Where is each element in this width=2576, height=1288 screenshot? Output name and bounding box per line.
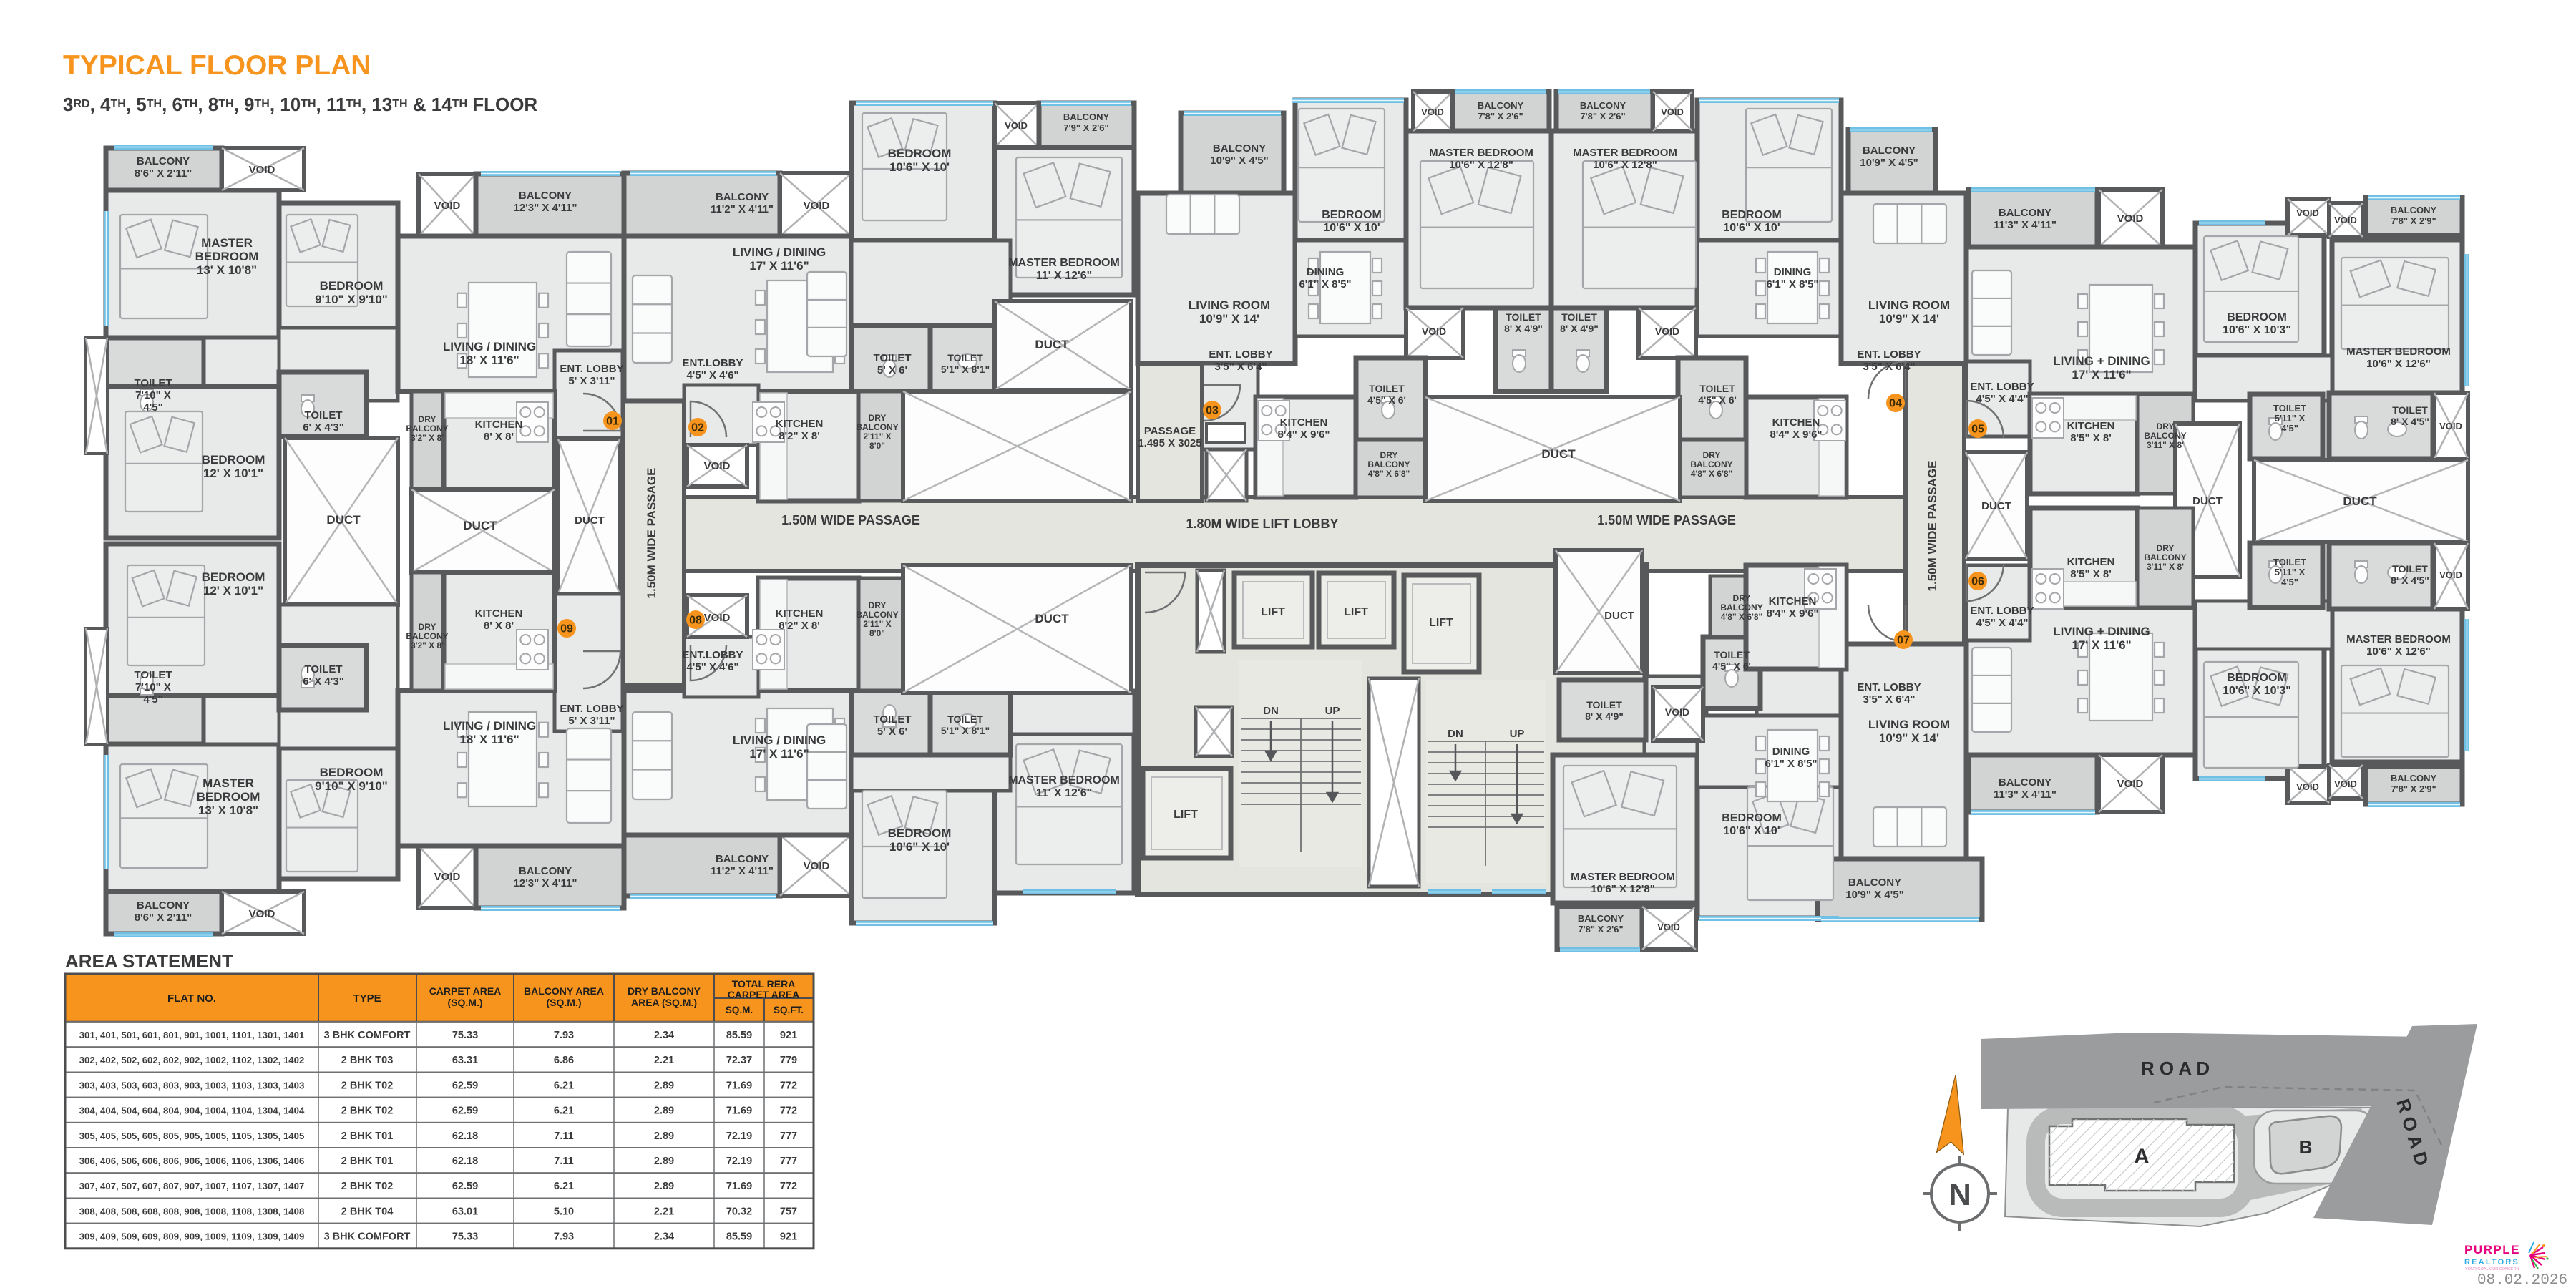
svg-text:2 BHK T01: 2 BHK T01 [341,1156,394,1167]
svg-text:ENT. LOBBY5' X 3'11": ENT. LOBBY5' X 3'11" [560,363,623,387]
svg-text:DN: DN [1448,728,1463,740]
svg-text:BEDROOM10'6" X 10': BEDROOM10'6" X 10' [888,147,952,174]
svg-text:772: 772 [780,1106,797,1117]
svg-text:TOILET4'5" X 6': TOILET4'5" X 6' [1712,649,1751,672]
svg-text:03: 03 [1206,405,1219,417]
svg-text:VOID: VOID [2296,781,2319,792]
svg-text:DINING6'1" X 8'5": DINING6'1" X 8'5" [1299,266,1351,291]
svg-text:72.19: 72.19 [726,1156,752,1167]
svg-text:DUCT: DUCT [1541,447,1576,461]
svg-text:304, 404, 504, 604, 804, 904,: 304, 404, 504, 604, 804, 904, 1004, 1104… [79,1106,305,1116]
svg-text:TOILET5' X 6': TOILET5' X 6' [873,713,911,738]
svg-text:TYPE: TYPE [353,992,381,1005]
svg-text:UP: UP [1510,728,1525,740]
svg-text:2.89: 2.89 [654,1156,674,1167]
svg-text:BEDROOM10'6" X 10'3": BEDROOM10'6" X 10'3" [2223,311,2291,336]
svg-text:BEDROOM10'6" X 10': BEDROOM10'6" X 10' [1722,812,1782,837]
svg-text:KITCHEN8'2" X 8': KITCHEN8'2" X 8' [776,418,824,442]
svg-text:BEDROOM12' X 10'1": BEDROOM12' X 10'1" [202,453,265,480]
svg-text:VOID: VOID [804,200,830,212]
svg-text:DUCT: DUCT [326,513,361,527]
svg-text:305, 405, 505, 605, 805, 905,: 305, 405, 505, 605, 805, 905, 1005, 1105… [79,1131,305,1141]
svg-text:VOID: VOID [2334,779,2357,789]
svg-text:2 BHK T02: 2 BHK T02 [341,1106,394,1117]
svg-text:ENT. LOBBY5' X 3'11": ENT. LOBBY5' X 3'11" [560,703,623,727]
svg-text:TYPICAL FLOOR PLAN: TYPICAL FLOOR PLAN [63,50,371,81]
svg-text:5.10: 5.10 [554,1206,574,1217]
svg-text:71.69: 71.69 [726,1106,752,1117]
svg-text:62.18: 62.18 [452,1156,478,1167]
svg-text:UP: UP [1325,705,1340,717]
svg-text:MASTERBEDROOM13' X 10'8": MASTERBEDROOM13' X 10'8" [195,236,259,277]
svg-text:BALCONY8'6" X 2'11": BALCONY8'6" X 2'11" [135,155,192,180]
svg-text:BALCONY12'3" X 4'11": BALCONY12'3" X 4'11" [514,190,577,214]
svg-text:307, 407, 507, 607, 807, 907,: 307, 407, 507, 607, 807, 907, 1007, 1107… [79,1181,305,1191]
svg-text:VOID: VOID [704,460,731,472]
svg-text:62.59: 62.59 [452,1106,478,1117]
svg-text:VOID: VOID [434,871,461,883]
svg-text:DRY BALCONYAREA (SQ.M.): DRY BALCONYAREA (SQ.M.) [628,985,701,1008]
svg-text:TOILET4'5" X 6': TOILET4'5" X 6' [1367,383,1406,406]
svg-text:BEDROOM10'6" X 10': BEDROOM10'6" X 10' [1722,209,1782,234]
svg-text:VOID: VOID [249,908,275,920]
svg-text:ENT.LOBBY4'5" X 4'6": ENT.LOBBY4'5" X 4'6" [682,649,743,673]
svg-text:2.89: 2.89 [654,1131,674,1142]
svg-text:62.18: 62.18 [452,1131,478,1142]
svg-text:VOID: VOID [2439,570,2462,580]
svg-text:309, 409, 509, 609, 809, 909,: 309, 409, 509, 609, 809, 909, 1009, 1109… [79,1231,305,1242]
svg-text:71.69: 71.69 [726,1080,752,1091]
svg-text:2.89: 2.89 [654,1106,674,1117]
svg-text:DN: DN [1263,705,1279,717]
svg-text:85.59: 85.59 [726,1231,752,1243]
svg-text:MASTERBEDROOM13' X 10'8": MASTERBEDROOM13' X 10'8" [197,776,260,817]
svg-text:TOILET8' X 4'5": TOILET8' X 4'5" [2391,404,2429,427]
svg-text:VOID: VOID [2117,778,2144,790]
svg-text:1.50M WIDE PASSAGE: 1.50M WIDE PASSAGE [1926,461,1939,592]
svg-text:2 BHK T03: 2 BHK T03 [341,1055,394,1066]
svg-text:TOILET6' X 4'3": TOILET6' X 4'3" [303,409,344,434]
svg-text:VOID: VOID [1661,107,1684,117]
svg-text:AREA STATEMENT: AREA STATEMENT [65,950,233,972]
svg-text:62.59: 62.59 [452,1080,478,1091]
svg-text:FLAT NO.: FLAT NO. [167,992,216,1005]
svg-text:VOID: VOID [2334,215,2357,225]
svg-text:LIVING ROOM10'9" X 14': LIVING ROOM10'9" X 14' [1189,298,1270,326]
svg-text:DUCT: DUCT [463,519,497,532]
svg-text:BEDROOM10'6" X 10': BEDROOM10'6" X 10' [1322,209,1382,234]
svg-text:301, 401, 501, 601, 801, 901,: 301, 401, 501, 601, 801, 901, 1001, 1101… [79,1030,305,1040]
svg-text:921: 921 [780,1030,797,1041]
svg-text:VOID: VOID [1422,326,1446,337]
svg-text:KITCHEN8'4" X 9'6": KITCHEN8'4" X 9'6" [1770,416,1822,441]
svg-text:2.89: 2.89 [654,1080,674,1091]
svg-text:BEDROOM12' X 10'1": BEDROOM12' X 10'1" [202,570,265,597]
svg-text:2.21: 2.21 [654,1206,674,1217]
svg-text:VOID: VOID [704,612,731,624]
svg-text:BEDROOM9'10" X 9'10": BEDROOM9'10" X 9'10" [315,279,388,306]
svg-text:PURPLE: PURPLE [2464,1243,2520,1257]
svg-text:DUCT: DUCT [1981,500,2011,512]
svg-text:1.50M WIDE PASSAGE: 1.50M WIDE PASSAGE [645,468,658,599]
svg-text:302, 402, 502, 602, 802, 902,: 302, 402, 502, 602, 802, 902, 1002, 1102… [79,1055,305,1065]
svg-text:6.21: 6.21 [554,1106,574,1117]
svg-text:2.34: 2.34 [654,1030,674,1041]
svg-text:2.34: 2.34 [654,1231,674,1243]
svg-text:75.33: 75.33 [452,1030,478,1041]
svg-text:63.31: 63.31 [452,1055,478,1066]
svg-text:KITCHEN8'5" X 8': KITCHEN8'5" X 8' [2067,556,2115,580]
svg-text:BALCONY11'3" X 4'11": BALCONY11'3" X 4'11" [1994,207,2057,231]
svg-text:02: 02 [691,422,704,434]
svg-text:TOILET5' X 6': TOILET5' X 6' [873,352,911,376]
svg-text:KITCHEN8'4" X 9'6": KITCHEN8'4" X 9'6" [1766,595,1818,620]
svg-text:VOID: VOID [249,164,275,176]
svg-text:BALCONY8'6" X 2'11": BALCONY8'6" X 2'11" [135,899,192,924]
svg-text:2 BHK T01: 2 BHK T01 [341,1131,394,1142]
svg-text:SQ.FT.: SQ.FT. [774,1005,804,1015]
svg-text:BALCONY7'8" X 2'9": BALCONY7'8" X 2'9" [2391,773,2437,794]
svg-text:TOILET5'1" X 8'1": TOILET5'1" X 8'1" [941,713,990,736]
svg-text:TOILET8' X 4'9": TOILET8' X 4'9" [1585,699,1624,722]
svg-text:7.93: 7.93 [554,1030,574,1041]
svg-text:TOILET5'1" X 8'1": TOILET5'1" X 8'1" [941,352,990,375]
svg-text:772: 772 [780,1080,797,1091]
svg-text:VOID: VOID [1657,922,1680,932]
svg-text:DUCT: DUCT [1035,338,1069,351]
svg-text:BALCONY7'8" X 2'6": BALCONY7'8" X 2'6" [1578,913,1624,935]
svg-text:VOID: VOID [1005,120,1028,131]
svg-text:VOID: VOID [434,200,461,212]
svg-text:08.02.2026: 08.02.2026 [2477,1272,2567,1288]
svg-text:06: 06 [1971,576,1984,588]
svg-text:6.21: 6.21 [554,1080,574,1091]
svg-text:LIFT: LIFT [1429,617,1453,629]
svg-text:75.33: 75.33 [452,1231,478,1243]
svg-text:N: N [1948,1177,1971,1212]
svg-text:777: 777 [780,1131,797,1142]
svg-text:6.21: 6.21 [554,1181,574,1192]
svg-text:DUCT: DUCT [575,514,605,527]
svg-text:7.93: 7.93 [554,1231,574,1243]
svg-text:TOILET8' X 4'9": TOILET8' X 4'9" [1504,311,1543,334]
svg-text:DUCT: DUCT [1604,610,1634,622]
svg-text:TOILET8' X 4'5": TOILET8' X 4'5" [2391,563,2429,586]
svg-text:PASSAGE1.495 X 3025: PASSAGE1.495 X 3025 [1138,425,1201,449]
svg-text:772: 772 [780,1181,797,1192]
svg-text:ENT. LOBBY3'5" X 6'4": ENT. LOBBY3'5" X 6'4" [1857,681,1921,706]
svg-text:LIFT: LIFT [1261,606,1285,618]
svg-text:63.01: 63.01 [452,1206,478,1217]
svg-text:3 BHK COMFORT: 3 BHK COMFORT [324,1030,411,1041]
svg-text:BEDROOM10'6" X 10'3": BEDROOM10'6" X 10'3" [2223,672,2291,697]
svg-text:777: 777 [780,1156,797,1167]
svg-text:1.50M WIDE PASSAGE: 1.50M WIDE PASSAGE [781,513,920,527]
svg-text:DUCT: DUCT [2192,495,2223,507]
svg-text:VOID: VOID [1655,326,1679,337]
svg-text:2.89: 2.89 [654,1181,674,1192]
svg-text:05: 05 [1971,424,1984,436]
svg-text:01: 01 [606,416,619,428]
svg-text:71.69: 71.69 [726,1181,752,1192]
svg-text:921: 921 [780,1231,797,1243]
svg-text:BALCONY7'9" X 2'6": BALCONY7'9" X 2'6" [1063,112,1110,133]
svg-text:2 BHK T02: 2 BHK T02 [341,1080,394,1091]
svg-text:1.80M WIDE LIFT LOBBY: 1.80M WIDE LIFT LOBBY [1186,517,1338,531]
svg-text:ENT.LOBBY4'5" X 4'6": ENT.LOBBY4'5" X 4'6" [682,357,743,381]
svg-text:72.37: 72.37 [726,1055,752,1066]
svg-text:KITCHEN8'2" X 8': KITCHEN8'2" X 8' [776,608,824,632]
svg-text:BALCONY11'3" X 4'11": BALCONY11'3" X 4'11" [1994,776,2057,801]
svg-text:DUCT: DUCT [2343,494,2377,508]
svg-text:07: 07 [1897,635,1910,647]
svg-text:BALCONY10'9" X 4'5": BALCONY10'9" X 4'5" [1210,142,1268,167]
svg-text:DINING6'1" X 8'5": DINING6'1" X 8'5" [1765,746,1817,770]
svg-text:85.59: 85.59 [726,1030,752,1041]
svg-text:62.59: 62.59 [452,1181,478,1192]
svg-text:70.32: 70.32 [726,1206,752,1217]
svg-text:LIVING ROOM10'9" X 14': LIVING ROOM10'9" X 14' [1868,718,1950,745]
svg-text:BALCONY7'8" X 2'6": BALCONY7'8" X 2'6" [1478,100,1524,122]
svg-text:LIFT: LIFT [1344,606,1368,618]
svg-text:BALCONY12'3" X 4'11": BALCONY12'3" X 4'11" [514,865,577,889]
svg-text:VOID: VOID [804,860,830,872]
svg-text:04: 04 [1889,398,1902,410]
svg-text:308, 408, 508, 608, 808, 908,: 308, 408, 508, 608, 808, 908, 1008, 1108… [79,1206,305,1216]
svg-text:BALCONY7'8" X 2'9": BALCONY7'8" X 2'9" [2391,205,2437,226]
svg-text:ENT. LOBBY4'5" X 4'4": ENT. LOBBY4'5" X 4'4" [1970,605,2034,629]
svg-text:7.11: 7.11 [554,1156,573,1167]
svg-text:ENT. LOBBY4'5" X 4'4": ENT. LOBBY4'5" X 4'4" [1970,381,2034,405]
svg-text:BALCONY11'2" X 4'11": BALCONY11'2" X 4'11" [711,853,774,877]
svg-text:7.11: 7.11 [554,1131,573,1142]
svg-text:6.86: 6.86 [554,1055,574,1066]
svg-text:303, 403, 503, 603, 803, 903,: 303, 403, 503, 603, 803, 903, 1003, 1103… [79,1080,305,1091]
svg-text:SQ.M.: SQ.M. [726,1005,753,1015]
svg-text:A: A [2134,1145,2150,1169]
svg-text:ENT. LOBBY3'5" X 6'4": ENT. LOBBY3'5" X 6'4" [1857,348,1921,373]
svg-text:BALCONY10'9" X 4'5": BALCONY10'9" X 4'5" [1845,877,1903,901]
svg-text:2.21: 2.21 [654,1055,674,1066]
svg-text:TOTAL RERACARPET AREA: TOTAL RERACARPET AREA [728,978,800,1000]
svg-text:VOID: VOID [2296,208,2319,218]
svg-text:VOID: VOID [1665,706,1689,718]
svg-text:VOID: VOID [1421,107,1444,117]
svg-text:72.19: 72.19 [726,1131,752,1142]
svg-text:LIVING ROOM10'9" X 14': LIVING ROOM10'9" X 14' [1868,298,1950,326]
svg-text:BEDROOM10'6" X 10': BEDROOM10'6" X 10' [888,826,952,854]
svg-text:1.50M WIDE PASSAGE: 1.50M WIDE PASSAGE [1597,513,1736,527]
svg-text:KITCHEN8'4" X 9'6": KITCHEN8'4" X 9'6" [1277,416,1330,441]
svg-text:DUCT: DUCT [1035,612,1069,625]
svg-text:TOILET4'5" X 6': TOILET4'5" X 6' [1698,383,1737,406]
svg-text:REALTORS: REALTORS [2464,1258,2519,1267]
svg-text:BALCONY11'2" X 4'11": BALCONY11'2" X 4'11" [711,191,774,215]
svg-text:VOID: VOID [2439,421,2462,431]
svg-text:TOILET8' X 4'9": TOILET8' X 4'9" [1560,311,1599,334]
svg-text:B: B [2299,1136,2313,1158]
svg-text:BALCONY7'8" X 2'6": BALCONY7'8" X 2'6" [1580,100,1626,122]
svg-text:09: 09 [560,623,573,635]
svg-text:KITCHEN8'5" X 8': KITCHEN8'5" X 8' [2067,420,2115,444]
svg-text:2 BHK T04: 2 BHK T04 [341,1206,394,1217]
svg-text:779: 779 [780,1055,797,1066]
svg-text:BALCONY10'9" X 4'5": BALCONY10'9" X 4'5" [1860,145,1918,169]
svg-text:R O A D: R O A D [2141,1058,2210,1079]
svg-text:YOUR GOAL OUR CONCERN: YOUR GOAL OUR CONCERN [2465,1267,2519,1272]
svg-text:757: 757 [780,1206,797,1217]
svg-text:DINING6'1" X 8'5": DINING6'1" X 8'5" [1766,266,1818,291]
svg-text:08: 08 [689,615,702,627]
svg-text:3 BHK COMFORT: 3 BHK COMFORT [324,1231,411,1243]
svg-text:VOID: VOID [2117,213,2144,225]
svg-text:2 BHK T02: 2 BHK T02 [341,1181,394,1192]
svg-text:BEDROOM9'10" X 9'10": BEDROOM9'10" X 9'10" [315,766,388,793]
svg-text:LIFT: LIFT [1174,809,1198,821]
svg-text:ENT. LOBBY3'5" X 6'4": ENT. LOBBY3'5" X 6'4" [1209,348,1272,373]
svg-text:306, 406, 506, 606, 806, 906,: 306, 406, 506, 606, 806, 906, 1006, 1106… [79,1156,305,1166]
svg-text:TOILET6' X 4'3": TOILET6' X 4'3" [303,663,344,688]
